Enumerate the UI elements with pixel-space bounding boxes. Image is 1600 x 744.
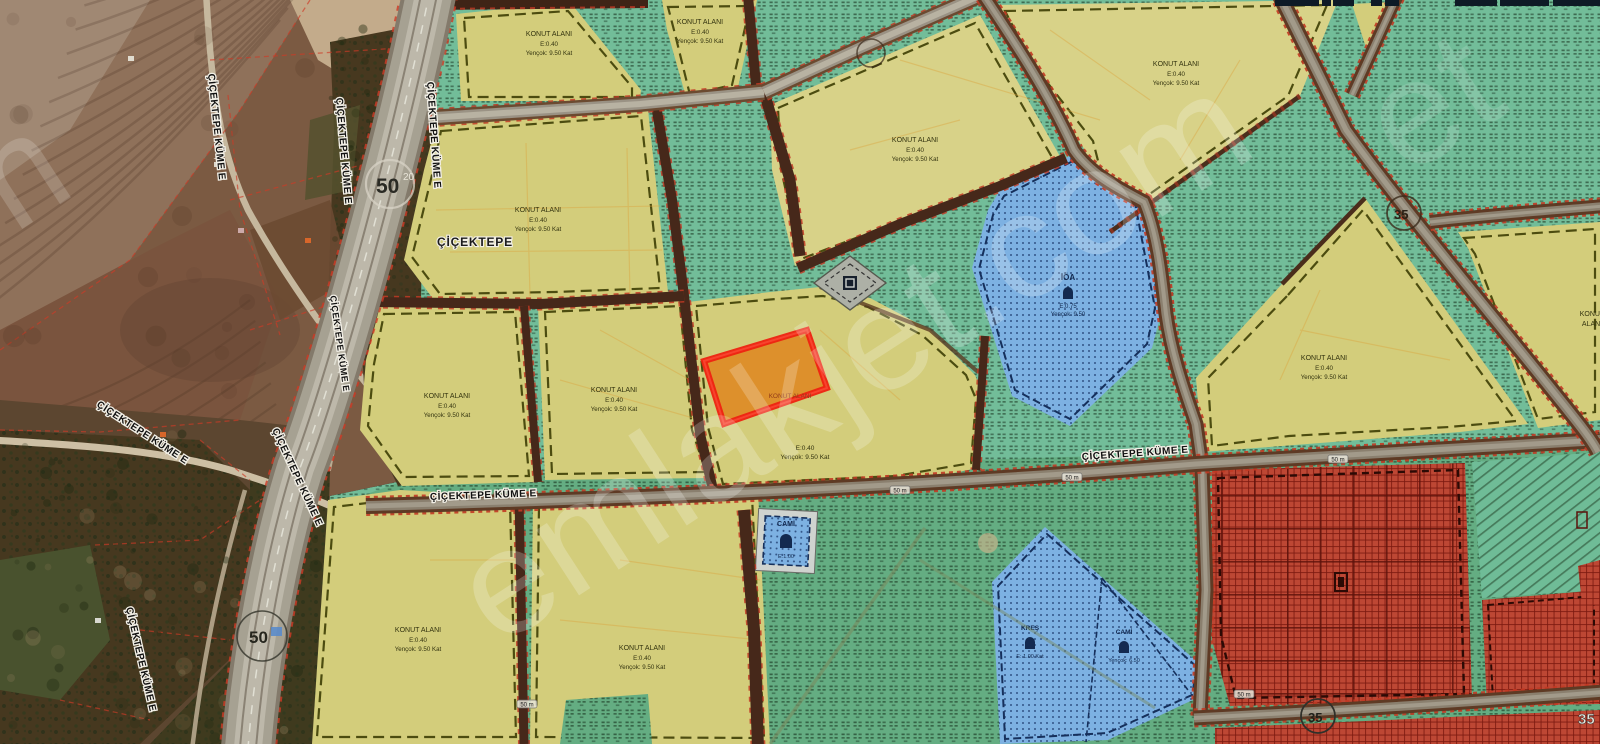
svg-text:E:1.00: E:1.00 xyxy=(778,554,794,560)
svg-text:E:0.40: E:0.40 xyxy=(438,403,456,410)
svg-text:E:0.40: E:0.40 xyxy=(605,397,623,404)
svg-text:35: 35 xyxy=(1394,207,1408,222)
svg-text:Yençok: 9.50 Kat: Yençok: 9.50 Kat xyxy=(395,646,442,653)
svg-text:ALANI: ALANI xyxy=(1582,321,1600,328)
svg-text:50 m: 50 m xyxy=(893,489,906,495)
svg-text:Yençok: 9.50 Kat: Yençok: 9.50 Kat xyxy=(1301,374,1348,381)
svg-text:KONUT: KONUT xyxy=(1580,311,1600,318)
svg-text:KONUT ALANI: KONUT ALANI xyxy=(591,387,637,394)
svg-text:KONUT ALANI: KONUT ALANI xyxy=(677,19,723,26)
svg-text:Yençok: 6.50: Yençok: 6.50 xyxy=(1108,658,1140,664)
svg-text:KONUT ALANI: KONUT ALANI xyxy=(424,393,470,400)
svg-text:20: 20 xyxy=(403,172,415,183)
svg-text:50 m: 50 m xyxy=(1065,476,1078,482)
svg-text:KONUT ALANI: KONUT ALANI xyxy=(395,627,441,634)
svg-text:35: 35 xyxy=(1308,710,1322,725)
svg-text:50 m: 50 m xyxy=(1331,458,1344,464)
svg-text:Yençok: 9.50 Kat: Yençok: 9.50 Kat xyxy=(515,226,562,233)
svg-text:50: 50 xyxy=(249,628,268,647)
svg-text:KONUT ALANI: KONUT ALANI xyxy=(526,31,572,38)
svg-text:Yençok: 9.50 Kat: Yençok: 9.50 Kat xyxy=(892,156,939,163)
svg-text:Yençok: 9.50 Kat: Yençok: 9.50 Kat xyxy=(619,664,666,671)
svg-text:KONUT ALANI: KONUT ALANI xyxy=(619,645,665,652)
svg-text:KONUT ALANI: KONUT ALANI xyxy=(1301,355,1347,362)
svg-text:50 m: 50 m xyxy=(520,703,533,709)
svg-text:E:0.40: E:0.40 xyxy=(529,217,547,224)
svg-text:CAMİ: CAMİ xyxy=(1116,628,1133,636)
svg-text:E:0.40: E:0.40 xyxy=(906,147,924,154)
svg-text:E:0.40: E:0.40 xyxy=(633,655,651,662)
svg-text:E:0.40: E:0.40 xyxy=(691,29,709,36)
svg-text:Yençok: 9.50 Kat: Yençok: 9.50 Kat xyxy=(526,50,573,57)
svg-text:ÇİÇEKTEPE: ÇİÇEKTEPE xyxy=(437,234,513,249)
svg-text:50: 50 xyxy=(376,175,399,198)
svg-text:Yençok: 9.50 Kat: Yençok: 9.50 Kat xyxy=(424,412,471,419)
svg-text:35: 35 xyxy=(1578,711,1595,728)
svg-text:E:0.40: E:0.40 xyxy=(540,41,558,48)
svg-text:50 m: 50 m xyxy=(1237,693,1250,699)
svg-text:E: 1.00 Kat: E: 1.00 Kat xyxy=(1016,654,1044,660)
svg-text:Yençok: 9.50 Kat: Yençok: 9.50 Kat xyxy=(677,38,724,45)
svg-text:KONUT ALANI: KONUT ALANI xyxy=(892,137,938,144)
svg-text:KONUT ALANI: KONUT ALANI xyxy=(515,207,561,214)
svg-text:E:0.40: E:0.40 xyxy=(409,637,427,644)
svg-text:CAMİ: CAMİ xyxy=(777,520,795,528)
svg-text:E:0.40: E:0.40 xyxy=(1315,365,1333,372)
